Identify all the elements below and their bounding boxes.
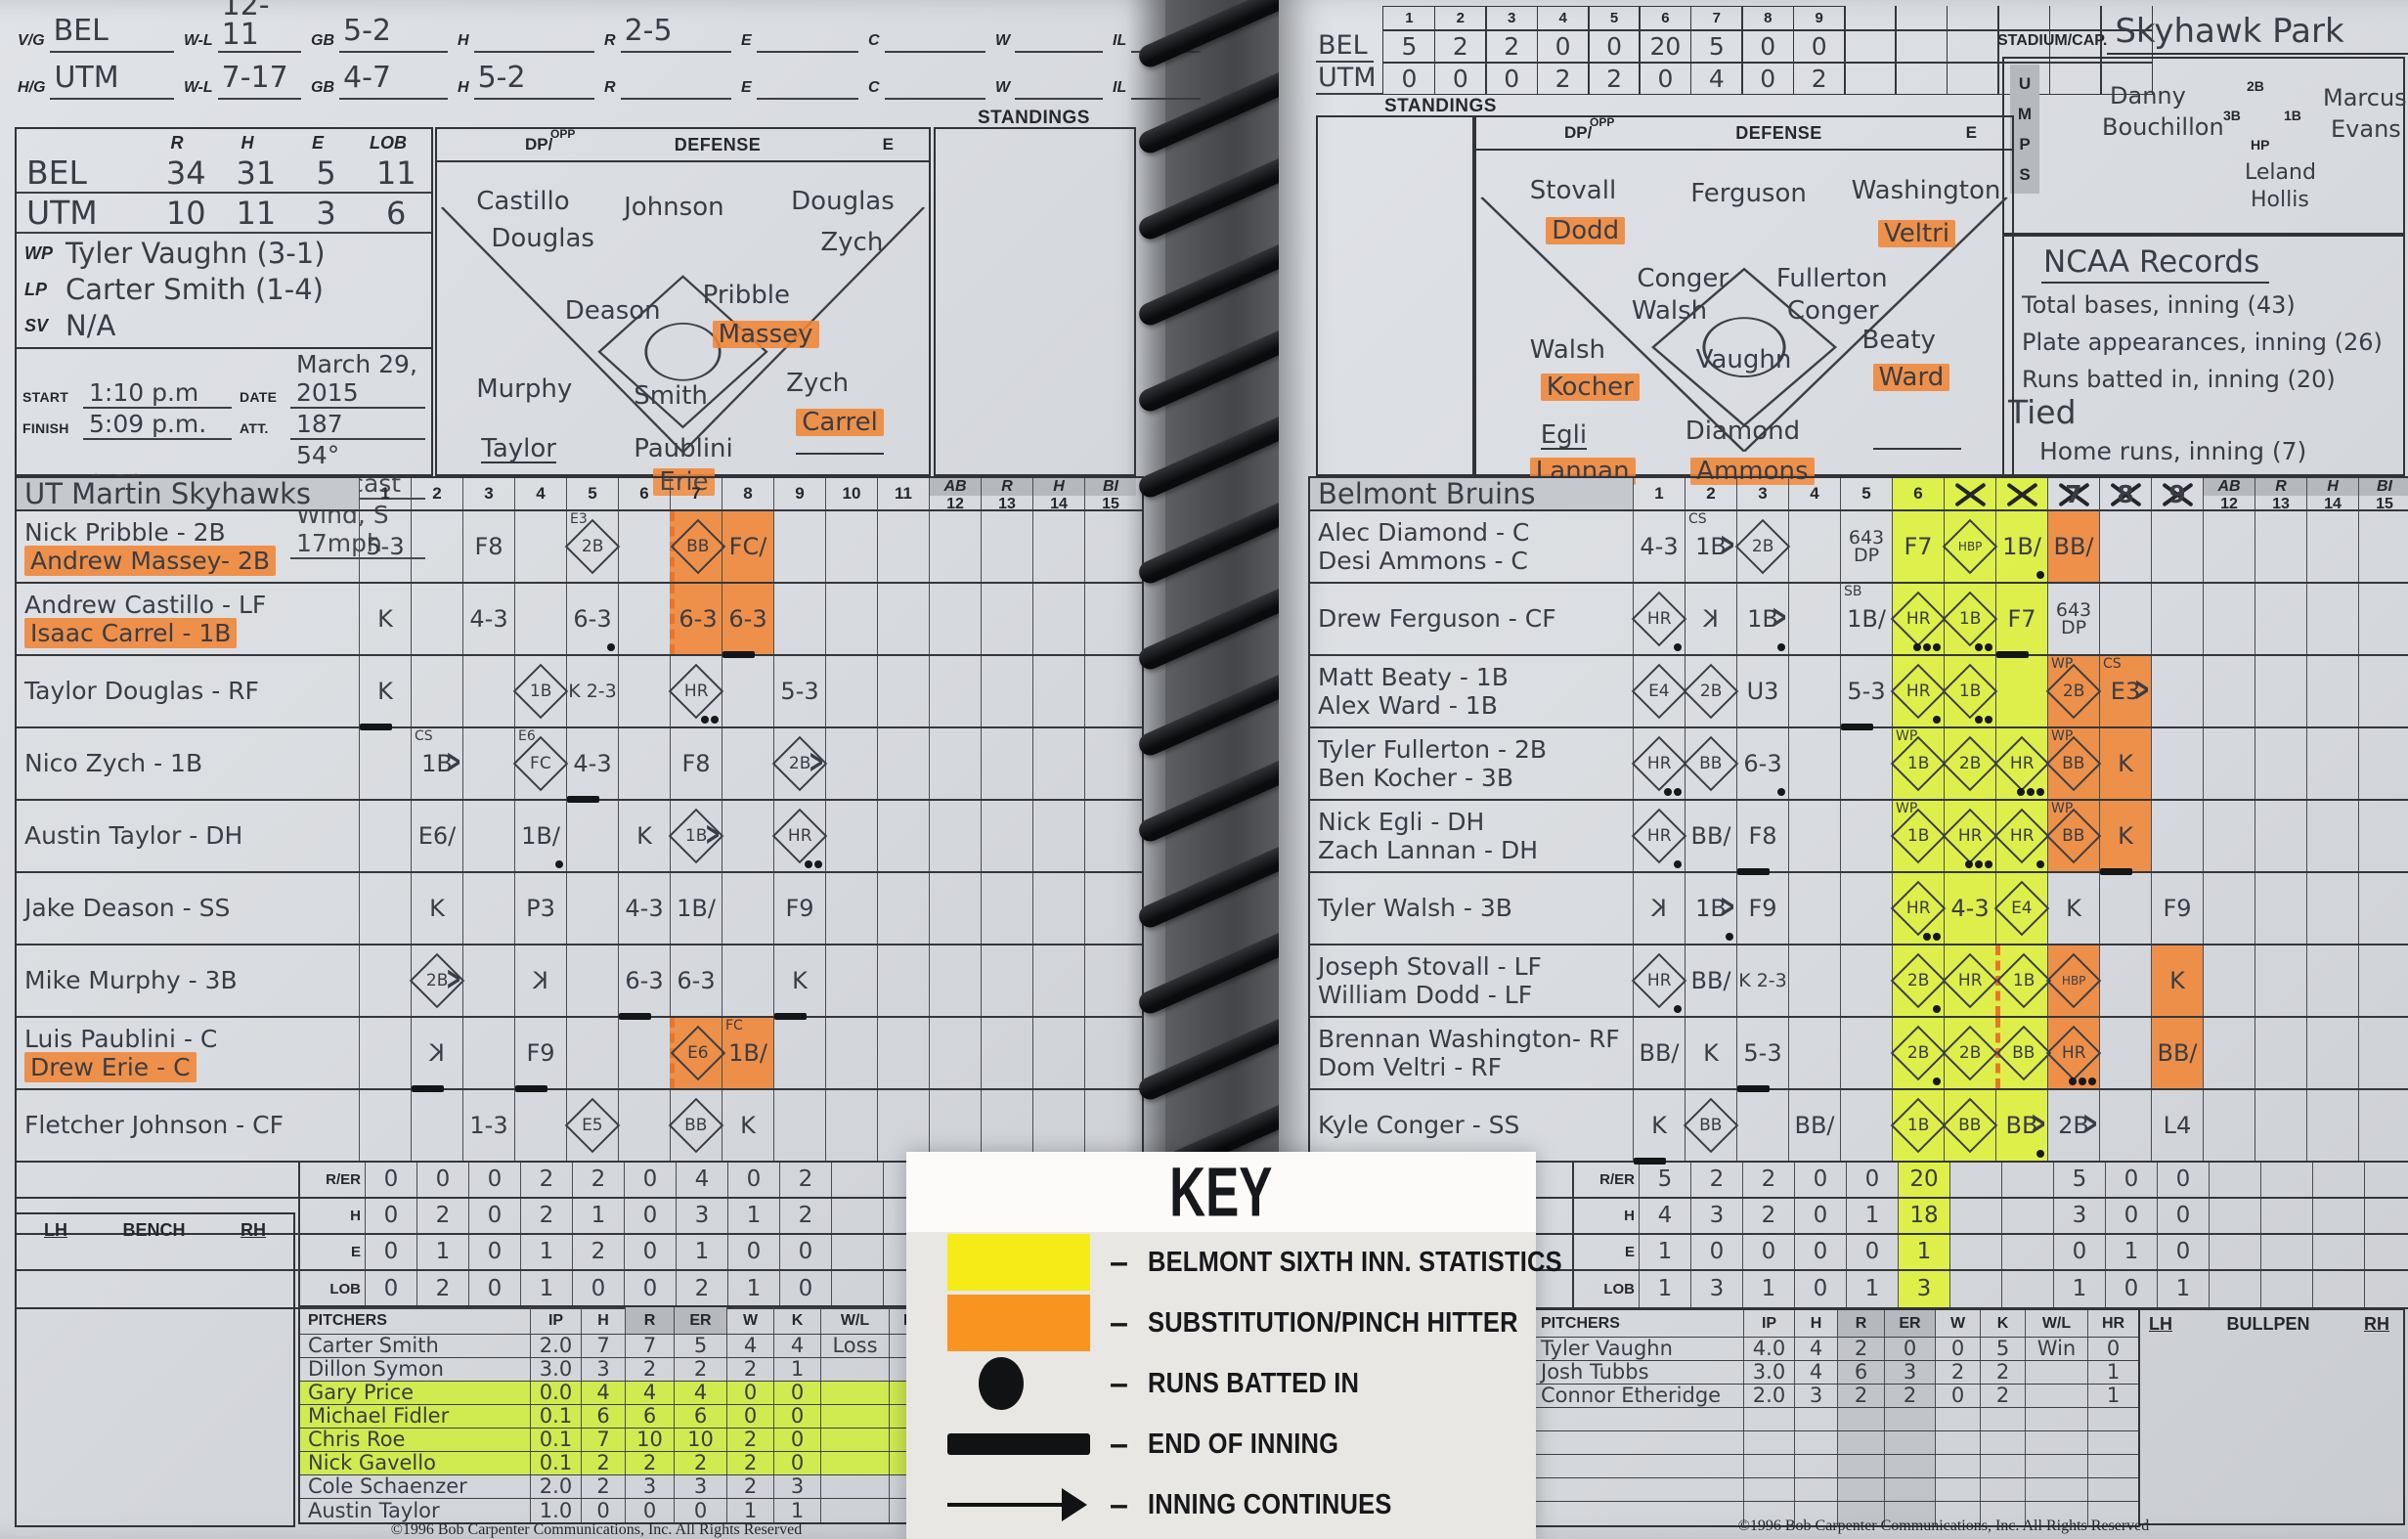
summary-cell: 0: [624, 1235, 676, 1269]
team-header: V/GBELW-L12-11GB5-2HR2-5ECWILH/GUTMW-L7-…: [18, 6, 1142, 100]
pitcher-stat: 1: [791, 1359, 804, 1380]
pitcher-stat: 0: [791, 1383, 804, 1403]
rbi-dot: [1777, 643, 1785, 651]
linescore-run-cell: [1844, 63, 1897, 95]
pitcher-name: Josh Tubbs: [1541, 1362, 1649, 1383]
scoring-cell: [825, 584, 877, 654]
summary-cell: 0: [1846, 1163, 1898, 1197]
summary-stat-cell: [2209, 1199, 2260, 1233]
record-label: LP: [24, 280, 66, 300]
rbi-dots: [1933, 1005, 1941, 1013]
team-header-label: GB: [311, 79, 334, 100]
key-item-label: END OF INNING: [1148, 1429, 1338, 1461]
defense-player-name: Taylor: [481, 436, 556, 463]
inning-continues-arrow-icon: [947, 1488, 1087, 1521]
pitcher-stat: 0: [694, 1501, 707, 1521]
diamond-label: HR: [1958, 971, 1983, 990]
linescore-runs: 0: [1760, 65, 1775, 93]
pitcher-stat-cell: 1: [773, 1358, 820, 1381]
team-header-field: E: [741, 64, 858, 100]
summary-value: 0: [780, 1271, 831, 1307]
batter-row: Drew Ferguson - CFHRK1B>SB1B/HR1BF7643 D…: [1310, 584, 2408, 656]
summary-cell: 0: [2105, 1163, 2157, 1197]
end-of-inning-bar: [1634, 1158, 1666, 1165]
inning-number: 8: [1764, 10, 1772, 26]
rbi-dots: [2017, 788, 2044, 796]
summary-stat-cell: [2260, 1235, 2312, 1269]
pitcher-stat: 3.0: [540, 1359, 572, 1380]
pitcher-stat: 4: [1810, 1339, 1822, 1359]
team-header-label: C: [868, 32, 880, 53]
pitcher-stat-cell: [1743, 1408, 1794, 1430]
scoring-cell: F8: [1736, 801, 1788, 871]
pitcher-stat-cell: 0.1: [530, 1405, 581, 1428]
batter-name: Mike Murphy - 3B: [24, 966, 351, 995]
pitcher-stat-cell: 3: [581, 1358, 625, 1381]
linescore-inning-header: [1947, 6, 1999, 30]
scoring-cell: [1840, 801, 1892, 871]
pitcher-stat-cell: 2: [1980, 1385, 2025, 1407]
grid-stat-header: R13: [2255, 478, 2306, 509]
diamond-mark: 1B: [1891, 736, 1947, 792]
pitcher-stat-cell: [1743, 1455, 1794, 1477]
scoring-cell: 6-3: [670, 584, 722, 654]
grid-column-header: 1: [359, 478, 411, 509]
rbi-dot: [1777, 788, 1785, 796]
pitcher-stat: 4: [744, 1336, 757, 1356]
bench-title: BENCH: [122, 1220, 185, 1241]
scoring-mark: F7: [1996, 584, 2047, 654]
pitcher-row: [1533, 1455, 2138, 1478]
summary-cell: 0: [779, 1271, 831, 1307]
ncaa-records-title: NCAA Records: [2041, 244, 2269, 284]
diamond-label: 2B: [1700, 682, 1722, 701]
printed-inning-number: 1: [380, 484, 389, 504]
pitcher-stat-cell: 0: [625, 1499, 674, 1522]
diamond-label: 1B: [1907, 826, 1929, 846]
pitcher-stat-cell: 2: [581, 1452, 625, 1474]
stat-cell: [2358, 1018, 2408, 1088]
scoring-cell: 5-3: [1736, 1018, 1788, 1088]
summary-cell: [1949, 1199, 2001, 1233]
summary-value: 2: [521, 1163, 572, 1197]
scoring-cell: 1B/: [670, 873, 722, 944]
linescore-inning-header: [1895, 6, 1948, 30]
wedge-mark: >: [2134, 670, 2150, 709]
team-header-label: W-L: [184, 79, 213, 100]
scoring-mark: BB: [686, 537, 709, 556]
pitcher-row: Nick Gavello0.1222200: [300, 1452, 940, 1475]
pitcher-stat: 0: [744, 1383, 757, 1403]
umps-letter: M: [2018, 105, 2032, 124]
scoring-cell: [825, 656, 877, 726]
summary-label-cell: R/ER: [298, 1163, 365, 1197]
rbi-dot: [1933, 643, 1941, 651]
scoring-cell: HR: [1892, 584, 1944, 654]
pitcher-stat: 7: [596, 1336, 609, 1356]
pitcher-name: Cole Schaenzer: [308, 1476, 467, 1497]
pitcher-stat-cell: 2: [625, 1452, 674, 1474]
scoring-cell: 2B>: [773, 728, 825, 799]
linescore-run-cell: 0: [1537, 30, 1590, 63]
pitcher-name-cell: Tyler Vaughn: [1533, 1338, 1743, 1360]
scoring-mark: K: [360, 584, 411, 654]
summary-cell: 1: [727, 1271, 779, 1307]
diamond-mark: 2B: [1891, 953, 1947, 1009]
scoring-mark: U3: [1737, 656, 1788, 726]
defense-player-name: Beaty: [1862, 328, 1936, 353]
linescore-runs: 0: [1453, 65, 1468, 93]
pitchers-column-header: H: [581, 1307, 625, 1334]
linescore-run-cell: 2: [1588, 63, 1641, 95]
scoring-cell: 6-3: [566, 584, 618, 654]
substitute-name-wrap: Dom Veltri - RF: [1318, 1053, 1625, 1082]
scoring-mark: 1B: [1959, 609, 1981, 629]
pitcher-stat-cell: 2: [726, 1429, 773, 1451]
batter-name: Tyler Walsh - 3B: [1318, 894, 1625, 923]
bench-box: LH BENCH RH: [15, 1212, 295, 1527]
diamond-label: 1B: [685, 826, 707, 846]
key-item: –RUNS BATTED IN: [906, 1353, 1536, 1414]
pitcher-row: Dillon Symon3.0322210: [300, 1358, 940, 1382]
summary-cell: [831, 1199, 883, 1233]
scoring-cell: [566, 873, 618, 944]
scoring-mark: 643 DP: [1841, 511, 1892, 582]
summary-value: 2: [780, 1199, 831, 1233]
scoring-cell: 1-3: [462, 1090, 514, 1161]
scoring-mark: 4-3: [567, 728, 618, 799]
pitchers-column-label: K: [792, 1312, 804, 1330]
pitchers-column-label: ER: [689, 1312, 711, 1330]
pitcher-stat-cell: 4: [1794, 1361, 1837, 1384]
linescore-run-cell: 2: [1434, 30, 1487, 63]
batter-row: Austin Taylor - DHE6/1B/K1B>HR: [17, 801, 1142, 873]
scoring-cell: HR: [1633, 801, 1685, 871]
scoring-mark: 4-3: [1945, 873, 1995, 944]
stat-letter: AB: [930, 478, 981, 496]
scoring-cell: [359, 873, 411, 944]
summary-cell: 0: [1794, 1235, 1846, 1269]
pitchers-column-label: W/L: [2042, 1315, 2071, 1333]
grid-column-header: 1: [1633, 478, 1685, 509]
scoring-mark: F9: [515, 1018, 566, 1088]
pitcher-stat: 2: [1996, 1362, 2009, 1383]
pitcher-stat: 2: [744, 1429, 757, 1450]
totals-value: 11: [361, 154, 431, 194]
scoring-cell: E5: [566, 1090, 618, 1161]
scoring-cell: HR: [1633, 584, 1685, 654]
stat-letter: R: [982, 478, 1032, 496]
pitcher-stat-cell: 1: [2087, 1361, 2138, 1384]
inning-number: 2: [1457, 10, 1465, 26]
stat-cell: [2306, 873, 2358, 944]
pitcher-stat-cell: 0: [581, 1499, 625, 1522]
opp-label: OPP: [550, 127, 575, 141]
diamond-label: HR: [1647, 971, 1672, 990]
batter-row: Tyler Fullerton - 2BBen Kocher - 3BHRBB6…: [1310, 728, 2408, 801]
scoring-cell: 5-3: [773, 656, 825, 726]
substitute-name-wrap: Andrew Massey- 2B: [24, 547, 351, 576]
team-header-label: W: [995, 32, 1010, 53]
grid-column-header: 7: [670, 478, 722, 509]
pitcher-stat: 10: [636, 1429, 663, 1450]
key-item-label: BELMONT SIXTH INN. STATISTICS: [1148, 1247, 1562, 1279]
stat-cell: [1032, 728, 1084, 799]
team-header-label: W: [995, 79, 1010, 100]
batter-row: Luis Paublini - CDrew Erie - CKF9E6FC1B/: [17, 1018, 1142, 1090]
stat-cell: [2203, 511, 2255, 582]
scoring-mark: K: [412, 1018, 462, 1088]
scoring-cell: HBP: [1944, 511, 1995, 582]
hand-inning-number: 9: [2168, 480, 2185, 508]
scoring-mark: K: [360, 656, 411, 726]
umpire-1-last: Bouchillon: [2102, 115, 2224, 139]
pitcher-name-cell: Connor Etheridge: [1533, 1385, 1743, 1407]
batter-row: Jake Deason - SSKP34-31B/F9: [17, 873, 1142, 945]
summary-value: 2: [1743, 1199, 1794, 1233]
pitcher-stat-cell: 10: [625, 1429, 674, 1451]
defense-player-name: Douglas: [791, 189, 895, 214]
scoring-cell: F9: [514, 1018, 566, 1088]
summary-cell: 3: [676, 1199, 727, 1233]
pitcher-name: Carter Smith: [308, 1336, 439, 1356]
defense-substitute-name: Veltri: [1878, 220, 1955, 247]
diamond-label: HR: [1647, 754, 1672, 773]
umpires-box: UMPS Danny Bouchillon 2B 3B 1B HP Marcus…: [2002, 57, 2405, 235]
scoring-mark: 1B: [685, 826, 707, 846]
diamond-mark: 1B: [1891, 809, 1947, 864]
batter-name-cell: Andrew Castillo - LFIsaac Carrel - 1B: [17, 584, 359, 654]
pitcher-stat: 0.1: [540, 1406, 572, 1427]
summary-value: 0: [728, 1235, 779, 1269]
rbi-dot: [1726, 933, 1733, 941]
scoring-cell: L4: [2151, 1090, 2203, 1161]
scoring-cell: [877, 801, 929, 871]
scoring-cell: [722, 945, 773, 1016]
pitcher-row: Gary Price0.0444001: [300, 1382, 940, 1405]
scoring-mark: BB: [1699, 1116, 1722, 1135]
defense-substitute-name: Kocher: [1541, 374, 1640, 401]
pitcher-stat-cell: 2: [581, 1475, 625, 1498]
scoring-cell: E6/: [411, 801, 462, 871]
stat-cell: [929, 511, 981, 582]
defense-player-name: [1873, 448, 1961, 450]
swatch-swatch-icon: [947, 1234, 1090, 1291]
pitcher-stat-cell: 3.0: [530, 1358, 581, 1381]
diamond-mark: BB: [1684, 736, 1739, 792]
team-header-field: W: [995, 17, 1103, 53]
color-swatch: [947, 1295, 1090, 1351]
stat-cell: [2203, 584, 2255, 654]
stat-cell: [1032, 584, 1084, 654]
diamond-label: 1B: [2013, 971, 2035, 990]
summary-cell: 2: [676, 1271, 727, 1307]
linescore-inning-header: 2: [1434, 6, 1487, 30]
stat-cell: [981, 1018, 1032, 1088]
team-header-value: 7-17: [218, 64, 301, 100]
copyright-right: ©1996 Bob Carpenter Communications, Inc.…: [1631, 1517, 2256, 1535]
scoring-cell: P3: [514, 873, 566, 944]
scoring-cell: K: [773, 945, 825, 1016]
scoring-mark: BB/: [1789, 1090, 1840, 1161]
pitcher-name: Chris Roe: [308, 1429, 405, 1450]
pitcher-stat: 2: [744, 1476, 757, 1497]
stat-cell: [2255, 1090, 2306, 1161]
team-header-field: GB5-2: [311, 17, 448, 53]
summary-value: 1: [573, 1199, 624, 1233]
pitcher-stat: 0: [596, 1501, 609, 1521]
pitcher-stat-cell: 4.0: [1743, 1338, 1794, 1360]
grid-stat-header: BI15: [2358, 478, 2408, 509]
pitchers-column-label: H: [1811, 1315, 1822, 1333]
scoring-mark: 2B: [582, 537, 603, 556]
pitchers-column-label: HR: [2102, 1315, 2124, 1333]
rbi-dot: [1674, 1005, 1682, 1013]
rbi-dot: [1933, 716, 1941, 724]
pitchers-column-label: R: [644, 1312, 656, 1330]
grid-column-header: 2: [1685, 478, 1736, 509]
pitcher-name: Nick Gavello: [308, 1453, 436, 1473]
pitcher-stat: 5: [694, 1336, 707, 1356]
scoring-cell: 1B>: [1685, 873, 1736, 944]
scoring-cell: K: [411, 1018, 462, 1088]
inning-number: 5: [1610, 10, 1618, 26]
diamond-mark: BB: [1684, 1098, 1739, 1154]
rbi-dots: [1975, 716, 1992, 724]
standings-label: STANDINGS: [978, 108, 1090, 129]
pitcher-stat: 1: [791, 1501, 804, 1521]
linescore-run-cell: 4: [1690, 63, 1743, 95]
scoring-superscript: FC: [725, 1019, 743, 1033]
linescore-inning-header: [1844, 6, 1897, 30]
linescore-run-cell: 5: [1382, 30, 1435, 63]
diamond-label: HR: [1906, 899, 1931, 918]
scoring-mark: K: [2048, 873, 2099, 944]
pitcher-stat: 1: [744, 1501, 757, 1521]
summary-value: 0: [1847, 1235, 1898, 1269]
scoring-mark: K: [2100, 728, 2151, 799]
totals-team: BEL: [17, 154, 151, 194]
grid-column-header: 7: [2047, 478, 2099, 509]
scoring-cell: 1B: [1944, 656, 1995, 726]
scoring-mark: 2B: [1959, 1043, 1981, 1063]
summary-spacer: [17, 1163, 298, 1197]
pitcher-stat-cell: [1837, 1408, 1884, 1430]
pitcher-stat: 0: [1951, 1339, 1964, 1359]
scoring-cell: K: [2099, 801, 2151, 871]
scoring-mark: HR: [1647, 971, 1672, 990]
scoring-mark: HR: [2010, 754, 2035, 773]
summary-value: 0: [625, 1271, 676, 1307]
grid-column-header: 4: [1788, 478, 1840, 509]
rbi-dots: [2069, 1077, 2096, 1085]
pitchers-column-label: R: [1856, 1315, 1867, 1333]
pitchers-column-header: H: [1794, 1310, 1837, 1337]
pitchers-column-header: IP: [1743, 1310, 1794, 1337]
batter-name: Joseph Stovall - LF: [1318, 952, 1625, 982]
diamond-mark: 2B: [1943, 736, 1998, 792]
scoring-superscript: E6: [518, 729, 536, 743]
totals-value: 6: [361, 195, 431, 234]
pitcher-stat: 10: [687, 1429, 714, 1450]
diamond-label: E4: [1648, 682, 1670, 701]
pitcher-stat-cell: 0: [726, 1405, 773, 1428]
grid-header-row: Belmont Bruins123456789AB12R13H14BI15: [1310, 478, 2408, 511]
linescore-run-cell: [1947, 30, 1999, 63]
pitcher-stat: 0.0: [540, 1383, 572, 1403]
team-header-field: C: [868, 17, 985, 53]
diamond-mark: HR: [1891, 664, 1947, 720]
end-of-inning-bar: [360, 724, 392, 730]
stat-cell: [2358, 801, 2408, 871]
scoring-cell: 5-3: [1840, 656, 1892, 726]
ncaa-record-line: Total bases, inning (43): [2022, 291, 2296, 319]
linescore-runs: 0: [1657, 65, 1673, 93]
batter-name: Nico Zych - 1B: [24, 749, 351, 778]
linescore-run-cell: [1895, 30, 1948, 63]
defense-diagram-right: StovallDoddFergusonWashingtonVeltriConge…: [1476, 149, 2012, 474]
linescore-runs: 0: [1606, 32, 1622, 61]
scoring-cell: E6: [670, 1018, 722, 1088]
scoring-cell: [2099, 1090, 2151, 1161]
scoring-cell: K: [1685, 584, 1736, 654]
diamond-mark: HR: [1994, 809, 2050, 864]
defense-player-name: Smith: [634, 383, 708, 409]
grid-column-header: 9: [773, 478, 825, 509]
scoring-cell: HR: [1892, 873, 1944, 944]
pitcher-stat-cell: [1884, 1431, 1935, 1454]
scoring-cell: [2151, 584, 2203, 654]
printed-inning-number: 6: [639, 484, 648, 504]
scoring-cell: [1788, 801, 1840, 871]
pitcher-stat: 2: [643, 1453, 656, 1473]
scoring-cell: [877, 1018, 929, 1088]
game-info-value: 5:09 p.m.: [83, 410, 232, 440]
batter-name: Kyle Conger - SS: [1318, 1111, 1625, 1140]
end-of-inning-bar: [412, 1085, 444, 1092]
batter-name-cell: Austin Taylor - DH: [17, 801, 359, 871]
stat-cell: [1032, 1090, 1084, 1161]
end-of-inning-bar: [619, 1013, 651, 1020]
scoring-cell: [825, 801, 877, 871]
rbi-dots: [1674, 860, 1682, 868]
summary-cell: [1949, 1235, 2001, 1269]
key-header: KEY: [906, 1152, 1536, 1232]
totals-table: RHELOBBEL3431511UTM101136: [17, 129, 431, 234]
game-totals-box: RHELOBBEL3431511UTM101136 WPTyler Vaughn…: [15, 127, 433, 349]
pitcher-name-cell: Nick Gavello: [300, 1452, 530, 1474]
scoring-cell: WP2B: [2047, 656, 2099, 726]
diamond-label: HR: [2010, 826, 2035, 846]
scoring-cell: 2B>: [2047, 1090, 2099, 1161]
summary-value: 18: [1899, 1199, 1949, 1233]
batter-row: Mike Murphy - 3B2B>K6-36-3K: [17, 945, 1142, 1018]
scoring-mark: HBP: [1958, 540, 1983, 553]
team-header-value: 5-2: [339, 17, 448, 53]
key-item-label: SUBSTITUTION/PINCH HITTER: [1148, 1307, 1518, 1340]
scoring-mark: 5-3: [774, 656, 825, 726]
summary-value: 0: [469, 1163, 520, 1197]
summary-stat-cell: [2312, 1235, 2364, 1269]
rbi-dots: [1726, 933, 1733, 941]
diamond-label: 2B: [582, 537, 603, 556]
stat-cell: [1032, 656, 1084, 726]
scoring-cell: 2B>: [411, 945, 462, 1016]
diamond-mark: HR: [1943, 809, 1998, 864]
scoring-cell: [411, 584, 462, 654]
substitute-name: Desi Ammons - C: [1318, 547, 1528, 575]
summary-cell: 0: [624, 1163, 676, 1197]
